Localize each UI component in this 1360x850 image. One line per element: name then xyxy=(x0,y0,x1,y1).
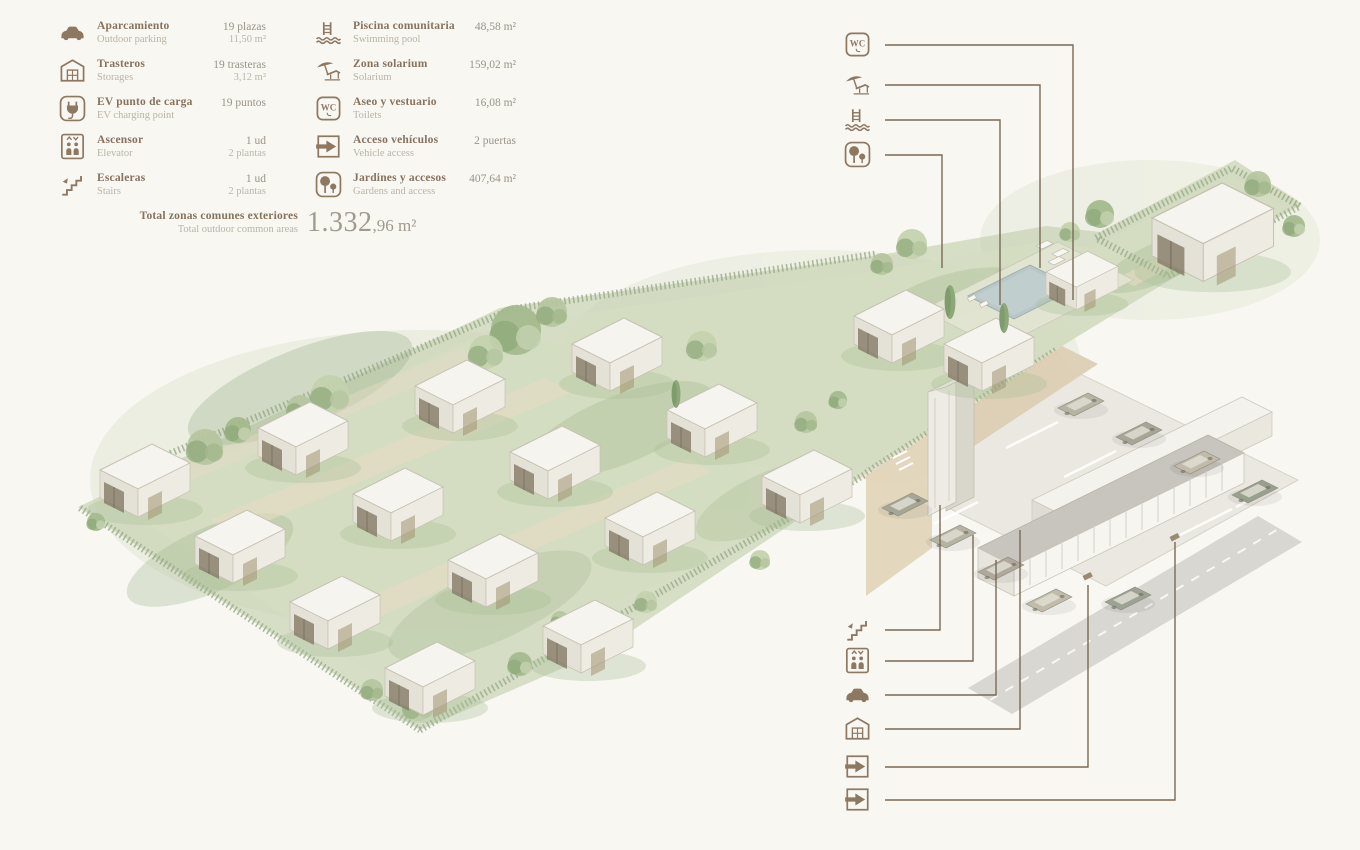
legend-label-es: Escaleras xyxy=(97,172,145,186)
legend-value: 159,02 m² xyxy=(469,58,516,72)
legend-label-es: Ascensor xyxy=(97,134,143,148)
solarium-icon xyxy=(314,56,343,85)
legend-label-es: EV punto de carga xyxy=(97,96,193,110)
legend-value: 19 plazas xyxy=(223,20,266,34)
car xyxy=(1022,589,1076,615)
legend-value: 1 ud xyxy=(228,134,266,148)
cypress-tree xyxy=(672,380,681,408)
legend-row-trasteros: TrasterosStorages 19 trasteras3,12 m² xyxy=(58,56,266,85)
legend-label-es: Zona solarium xyxy=(353,58,428,72)
car-callout-icon xyxy=(843,680,872,709)
legend-value: 19 puntos xyxy=(221,96,266,110)
pool-callout-icon xyxy=(843,105,872,134)
legend-label-en: Solarium xyxy=(353,72,428,84)
stairs-callout-icon xyxy=(843,615,872,644)
legend-row-ascensor: AscensorElevator 1 ud2 plantas xyxy=(58,132,266,161)
storage-callout-icon xyxy=(843,714,872,743)
legend-label-es: Jardines y accesos xyxy=(353,172,446,186)
elevator-callout-icon xyxy=(843,646,872,675)
legend-label-es: Aseo y vestuario xyxy=(353,96,437,110)
legend-label-en: EV charging point xyxy=(97,110,193,122)
legend-row-escaleras: EscalerasStairs 1 ud2 plantas xyxy=(58,170,266,199)
total-common-areas: Total zonas comunes exteriores Total out… xyxy=(110,207,416,239)
tree xyxy=(536,297,567,327)
elevator-icon xyxy=(58,132,87,161)
legend-column-1: AparcamientoOutdoor parking 19 plazas11,… xyxy=(58,18,266,199)
legend-row-jardines: Jardines y accesosGardens and access 407… xyxy=(314,170,516,199)
legend-label-en: Gardens and access xyxy=(353,186,446,198)
legend-value: 16,08 m² xyxy=(475,96,516,110)
legend-label-es: Aparcamiento xyxy=(97,20,169,34)
cypress-tree xyxy=(999,303,1009,333)
legend-value: 48,58 m² xyxy=(475,20,516,34)
legend-value-2: 2 plantas xyxy=(228,148,266,161)
cypress-tree xyxy=(945,285,956,319)
legend-label-en: Toilets xyxy=(353,110,437,122)
pool-icon xyxy=(314,18,343,47)
tree xyxy=(896,229,927,259)
legend-value: 19 trasteras xyxy=(213,58,266,72)
storage-icon xyxy=(58,56,87,85)
legend-row-solarium: Zona solariumSolarium 159,02 m² xyxy=(314,56,516,85)
legend-label-en: Elevator xyxy=(97,148,143,160)
legend-value: 1 ud xyxy=(228,172,266,186)
legend-label-es: Acceso vehículos xyxy=(353,134,438,148)
legend-row-acceso: Acceso vehículosVehicle access 2 puertas xyxy=(314,132,516,161)
legend-value: 2 puertas xyxy=(474,134,516,148)
tree xyxy=(749,550,770,570)
legend-value-2: 3,12 m² xyxy=(213,72,266,85)
legend-label-en: Outdoor parking xyxy=(97,34,169,46)
site-plan-page: AparcamientoOutdoor parking 19 plazas11,… xyxy=(0,0,1360,850)
vehicle-access-callout-icon-2 xyxy=(843,785,872,814)
parking-area xyxy=(866,346,1302,714)
gardens-callout-icon xyxy=(843,140,872,169)
legend-value-2: 11,50 m² xyxy=(223,34,266,47)
legend-row-piscina: Piscina comunitariaSwimming pool 48,58 m… xyxy=(314,18,516,47)
wc-callout-icon xyxy=(843,30,872,59)
solarium-callout-icon xyxy=(843,70,872,99)
car-icon xyxy=(58,18,87,47)
legend-label-en: Vehicle access xyxy=(353,148,438,160)
legend-value-2: 2 plantas xyxy=(228,186,266,199)
vehicle-access-callout-icon-1 xyxy=(843,752,872,781)
vehicle-access-icon xyxy=(314,132,343,161)
legend-value: 407,64 m² xyxy=(469,172,516,186)
legend-row-aseo: Aseo y vestuarioToilets 16,08 m² xyxy=(314,94,516,123)
total-label-es: Total zonas comunes exteriores xyxy=(110,210,298,224)
stairs-icon xyxy=(58,170,87,199)
legend-row-aparcamiento: AparcamientoOutdoor parking 19 plazas11,… xyxy=(58,18,266,47)
car xyxy=(926,525,980,551)
total-value: 1.332,96 m² xyxy=(307,207,416,239)
gardens-icon xyxy=(314,170,343,199)
wc-icon xyxy=(314,94,343,123)
legend-label-en: Stairs xyxy=(97,186,145,198)
legend-label-en: Swimming pool xyxy=(353,34,455,46)
legend-column-2: Piscina comunitariaSwimming pool 48,58 m… xyxy=(314,18,516,199)
legend-label-en: Storages xyxy=(97,72,145,84)
ev-charging-icon xyxy=(58,94,87,123)
legend-label-es: Trasteros xyxy=(97,58,145,72)
legend-row-ev: EV punto de cargaEV charging point 19 pu… xyxy=(58,94,266,123)
total-label-en: Total outdoor common areas xyxy=(110,224,298,237)
legend-label-es: Piscina comunitaria xyxy=(353,20,455,34)
